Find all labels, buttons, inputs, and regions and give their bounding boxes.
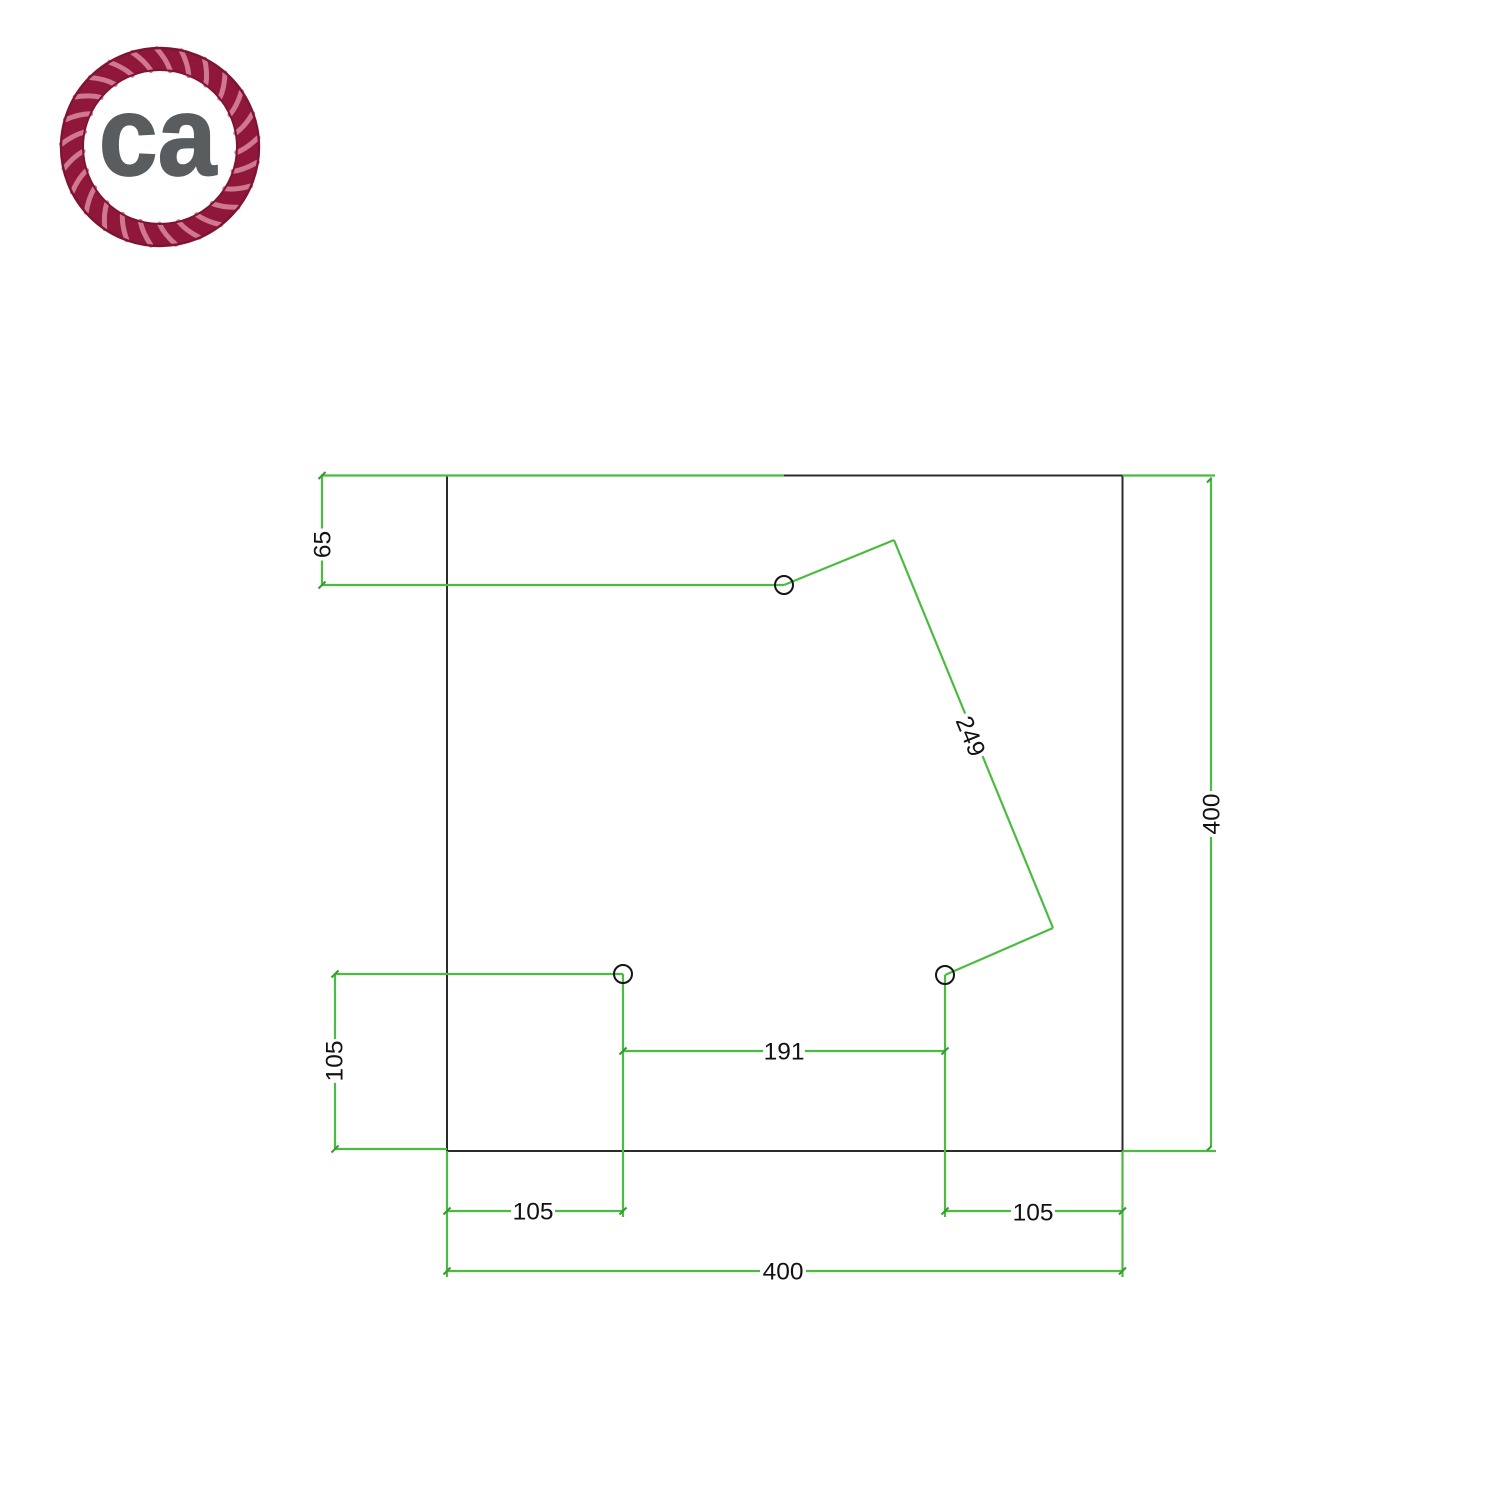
- svg-text:400: 400: [763, 1259, 804, 1286]
- svg-text:191: 191: [764, 1039, 805, 1066]
- svg-text:105: 105: [322, 1041, 349, 1082]
- svg-text:105: 105: [1013, 1200, 1054, 1227]
- svg-text:105: 105: [513, 1199, 554, 1226]
- svg-text:65: 65: [310, 531, 337, 558]
- svg-text:ca: ca: [99, 73, 218, 199]
- svg-text:400: 400: [1199, 794, 1226, 835]
